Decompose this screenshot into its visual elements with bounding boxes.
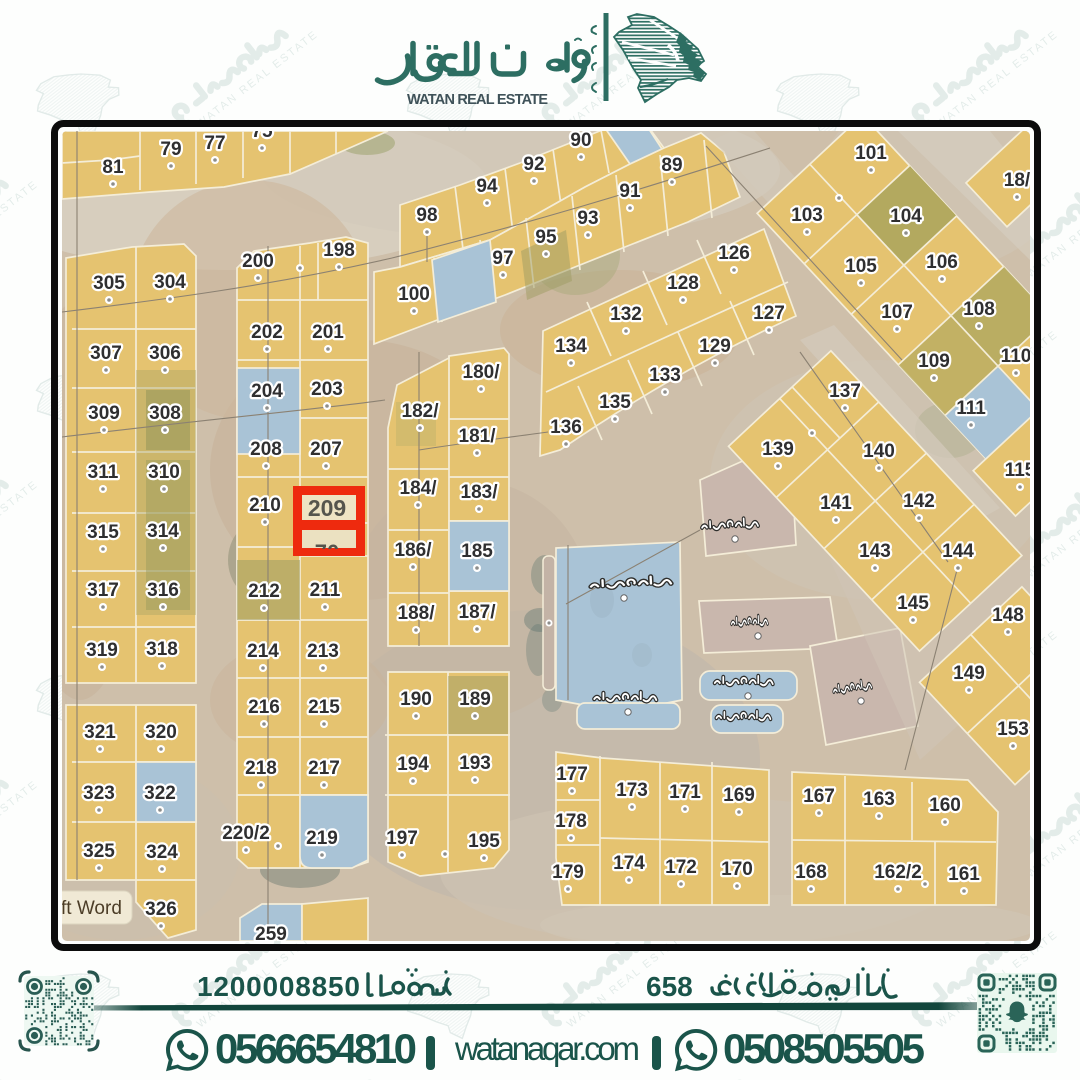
- svg-text:173: 173: [616, 780, 648, 801]
- svg-text:326: 326: [145, 899, 177, 920]
- svg-text:162/2: 162/2: [874, 862, 922, 883]
- svg-text:167: 167: [803, 786, 835, 807]
- svg-text:214: 214: [247, 641, 279, 662]
- svg-text:322: 322: [144, 783, 176, 804]
- svg-text:316: 316: [147, 580, 179, 601]
- svg-text:94: 94: [476, 176, 498, 197]
- svg-text:98: 98: [416, 205, 437, 226]
- svg-text:189: 189: [459, 689, 491, 710]
- svg-text:201: 201: [312, 322, 344, 343]
- svg-text:127: 127: [753, 303, 785, 324]
- svg-text:153: 153: [997, 719, 1029, 740]
- svg-text:110: 110: [1001, 346, 1032, 367]
- svg-text:183/: 183/: [461, 482, 499, 503]
- svg-text:195: 195: [468, 831, 500, 852]
- svg-text:1200008850: 1200008850: [197, 971, 360, 1002]
- svg-text:140: 140: [863, 441, 895, 462]
- svg-text:watanaqar.com: watanaqar.com: [454, 1030, 640, 1067]
- svg-text:163: 163: [863, 789, 895, 810]
- svg-text:160: 160: [929, 795, 961, 816]
- svg-text:142: 142: [903, 491, 935, 512]
- svg-text:219: 219: [306, 828, 338, 849]
- svg-text:0508505505: 0508505505: [723, 1025, 925, 1072]
- svg-text:211: 211: [310, 580, 341, 601]
- svg-text:318: 318: [146, 639, 178, 660]
- svg-text:143: 143: [859, 541, 891, 562]
- svg-text:215: 215: [308, 697, 340, 718]
- svg-text:321: 321: [84, 722, 116, 743]
- svg-text:320: 320: [145, 722, 177, 743]
- svg-text:174: 174: [613, 853, 645, 874]
- svg-text:323: 323: [83, 783, 115, 804]
- svg-text:18/: 18/: [1004, 170, 1031, 191]
- svg-text:92: 92: [523, 154, 544, 175]
- svg-text:104: 104: [890, 206, 922, 227]
- svg-text:309: 309: [88, 403, 120, 424]
- svg-text:81: 81: [102, 157, 124, 178]
- svg-text:203: 203: [311, 379, 343, 400]
- svg-text:139: 139: [762, 439, 794, 460]
- svg-text:178: 178: [555, 811, 587, 832]
- svg-text:144: 144: [942, 541, 974, 562]
- svg-text:218: 218: [245, 758, 277, 779]
- svg-text:172: 172: [665, 857, 697, 878]
- svg-text:186/: 186/: [395, 540, 433, 561]
- svg-text:148: 148: [992, 605, 1024, 626]
- svg-text:198: 198: [323, 240, 355, 261]
- svg-text:220/2: 220/2: [222, 823, 270, 844]
- svg-text:187/: 187/: [459, 602, 497, 623]
- svg-text:308: 308: [149, 403, 181, 424]
- svg-text:149: 149: [953, 663, 985, 684]
- svg-text:324: 324: [146, 842, 178, 863]
- svg-text:182/: 182/: [402, 401, 440, 422]
- svg-text:WATAN REAL ESTATE: WATAN REAL ESTATE: [407, 92, 549, 108]
- svg-text:210: 210: [249, 495, 281, 516]
- svg-text:79: 79: [160, 139, 181, 160]
- svg-text:207: 207: [310, 439, 342, 460]
- svg-text:188/: 188/: [398, 603, 436, 624]
- svg-text:658: 658: [646, 971, 693, 1002]
- svg-text:209: 209: [308, 495, 346, 521]
- svg-text:108: 108: [963, 299, 995, 320]
- svg-text:134: 134: [555, 336, 587, 357]
- svg-text:179: 179: [552, 862, 584, 883]
- svg-text:177: 177: [556, 764, 588, 785]
- svg-text:126: 126: [718, 243, 750, 264]
- svg-text:129: 129: [699, 336, 731, 357]
- svg-text:105: 105: [845, 256, 877, 277]
- svg-text:212: 212: [248, 581, 280, 602]
- svg-text:325: 325: [83, 841, 115, 862]
- svg-text:89: 89: [661, 155, 682, 176]
- svg-text:200: 200: [242, 251, 274, 272]
- svg-text:305: 305: [93, 273, 125, 294]
- svg-text:ft Word: ft Word: [61, 898, 122, 919]
- svg-text:91: 91: [619, 181, 641, 202]
- svg-text:101: 101: [855, 143, 887, 164]
- svg-text:171: 171: [669, 782, 701, 803]
- svg-text:90: 90: [570, 130, 591, 151]
- svg-text:194: 194: [397, 754, 429, 775]
- svg-text:315: 315: [87, 522, 119, 543]
- svg-text:0566654810: 0566654810: [215, 1025, 417, 1072]
- svg-text:133: 133: [649, 365, 681, 386]
- svg-text:77: 77: [204, 133, 225, 154]
- svg-text:95: 95: [535, 227, 557, 248]
- svg-text:314: 314: [147, 521, 179, 542]
- svg-text:93: 93: [577, 208, 598, 229]
- svg-text:180/: 180/: [463, 362, 501, 383]
- svg-text:135: 135: [599, 392, 631, 413]
- svg-text:181/: 181/: [459, 426, 497, 447]
- svg-text:161: 161: [948, 864, 980, 885]
- svg-text:184/: 184/: [400, 478, 438, 499]
- svg-text:190: 190: [400, 689, 432, 710]
- svg-text:141: 141: [820, 493, 852, 514]
- svg-text:208: 208: [250, 439, 282, 460]
- svg-text:145: 145: [897, 593, 929, 614]
- svg-text:136: 136: [550, 417, 582, 438]
- svg-text:128: 128: [667, 273, 699, 294]
- svg-text:304: 304: [154, 272, 186, 293]
- svg-text:202: 202: [251, 322, 283, 343]
- svg-text:111: 111: [956, 398, 986, 419]
- svg-text:319: 319: [86, 640, 118, 661]
- svg-text:109: 109: [918, 351, 950, 372]
- svg-text:137: 137: [829, 381, 861, 402]
- svg-text:106: 106: [926, 252, 958, 273]
- svg-text:307: 307: [90, 343, 122, 364]
- svg-text:193: 193: [459, 753, 491, 774]
- svg-text:204: 204: [251, 381, 283, 402]
- svg-text:310: 310: [148, 462, 180, 483]
- svg-text:103: 103: [791, 205, 823, 226]
- svg-text:107: 107: [881, 302, 913, 323]
- svg-text:100: 100: [398, 284, 430, 305]
- svg-text:170: 170: [721, 859, 753, 880]
- svg-text:132: 132: [610, 304, 642, 325]
- svg-text:169: 169: [723, 785, 755, 806]
- svg-text:317: 317: [87, 580, 119, 601]
- svg-text:197: 197: [386, 828, 418, 849]
- svg-text:97: 97: [492, 248, 513, 269]
- svg-text:311: 311: [88, 462, 119, 483]
- svg-text:168: 168: [795, 862, 827, 883]
- svg-text:185: 185: [461, 541, 493, 562]
- svg-text:216: 216: [248, 697, 280, 718]
- svg-text:306: 306: [149, 343, 181, 364]
- svg-text:217: 217: [308, 758, 340, 779]
- svg-text:213: 213: [307, 641, 339, 662]
